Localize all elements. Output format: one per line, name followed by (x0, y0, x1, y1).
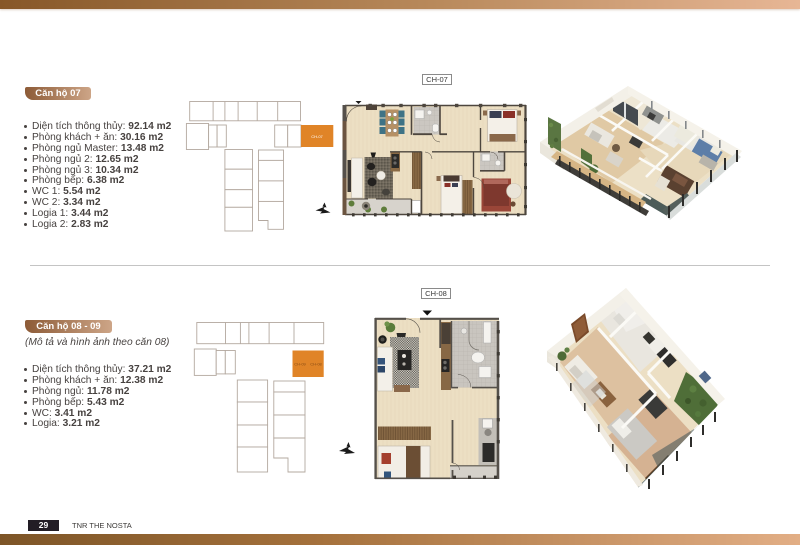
svg-text:CH-07: CH-07 (311, 134, 323, 139)
svg-text:CH-08: CH-08 (310, 362, 322, 367)
svg-text:CH-09: CH-09 (294, 362, 306, 367)
